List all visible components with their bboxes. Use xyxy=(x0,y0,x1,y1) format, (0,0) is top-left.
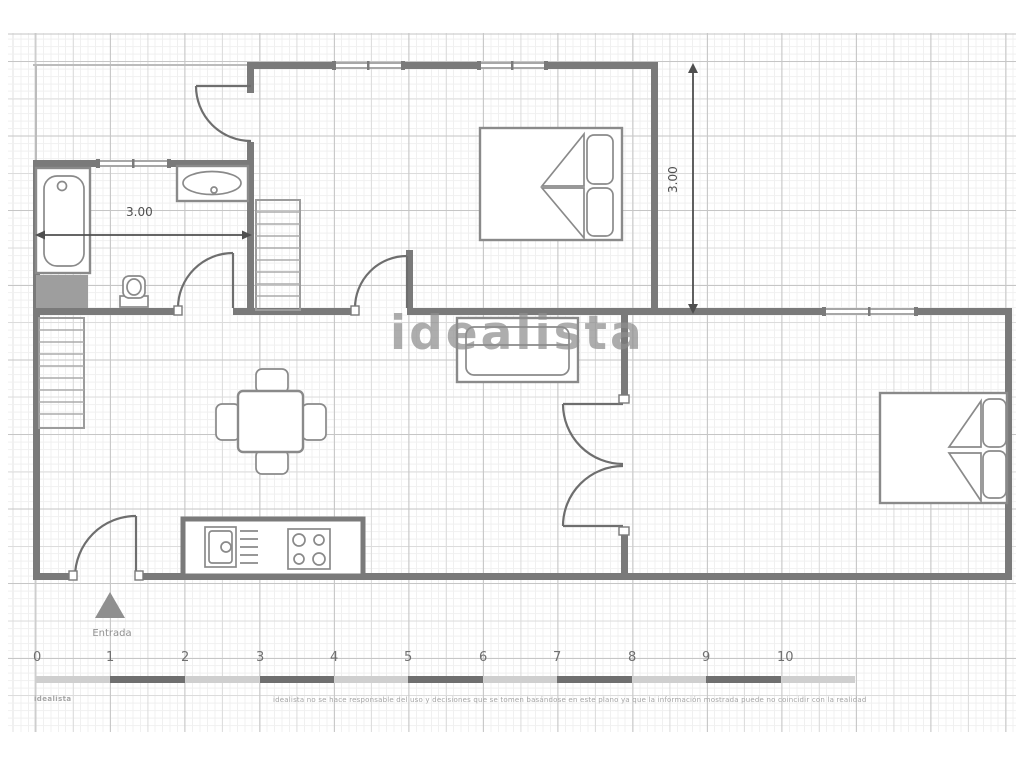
entrance-label: Entrada xyxy=(80,628,144,639)
floor-plan-screenshot: 3.00 3.00 idealista Entrada 0 1 2 3 4 5 … xyxy=(0,0,1024,768)
ruler-segment xyxy=(557,676,632,683)
bed-double-icon xyxy=(480,128,622,240)
ruler-segment xyxy=(110,676,185,683)
wardrobe-bedroom1-icon xyxy=(256,200,300,310)
ruler-number: 5 xyxy=(404,650,430,665)
wall-french-lower xyxy=(621,528,628,580)
ruler-segment xyxy=(408,676,483,683)
bed2-double-icon xyxy=(880,393,1007,503)
bathroom-door xyxy=(174,253,233,315)
wall-mid-seg1 xyxy=(33,308,180,315)
terrace-outline xyxy=(33,65,254,160)
window-bedroom1-right xyxy=(477,61,548,70)
ruler-segment xyxy=(706,676,781,683)
dimension-label-bedroom: 3.00 xyxy=(666,157,680,193)
ruler-number: 8 xyxy=(628,650,654,665)
ruler-number: 3 xyxy=(256,650,282,665)
window-hall-right xyxy=(822,307,918,316)
footer-disclaimer: idealista no se hace responsable del uso… xyxy=(273,696,873,704)
bedroom2 xyxy=(880,393,1007,503)
idealista-watermark: idealista xyxy=(390,306,645,361)
terrace-door xyxy=(196,86,251,141)
ruler-number: 4 xyxy=(330,650,356,665)
ruler-number: 1 xyxy=(106,650,132,665)
ruler-number: 2 xyxy=(181,650,207,665)
entrance-arrow-icon xyxy=(95,592,125,618)
dimension-label-bathroom: 3.00 xyxy=(126,205,153,219)
ruler-number: 10 xyxy=(777,650,803,665)
kitchen-sink-icon xyxy=(205,527,236,567)
shower-block xyxy=(36,275,88,308)
window-bedroom1-left xyxy=(332,61,405,70)
bedroom1 xyxy=(196,63,698,315)
window-bathroom xyxy=(96,159,171,168)
bedroom-dimension-arrow xyxy=(688,63,698,314)
ruler-number: 7 xyxy=(553,650,579,665)
bathtub-icon xyxy=(36,168,90,273)
dining-set-icon xyxy=(216,369,326,474)
toilet-icon xyxy=(120,276,148,307)
entrance-door xyxy=(69,516,143,580)
footer-brand: idealista xyxy=(34,695,72,703)
french-doors xyxy=(563,395,629,535)
wall-bedroom1-left-jamb xyxy=(247,62,254,93)
ruler-number: 0 xyxy=(33,650,59,665)
stove-icon xyxy=(288,529,330,569)
ruler-segment xyxy=(260,676,334,683)
floor-plan-canvas xyxy=(0,0,1024,768)
kitchen-counter xyxy=(183,519,363,576)
wall-top xyxy=(247,62,657,69)
ruler-number: 6 xyxy=(479,650,505,665)
bathroom xyxy=(35,166,252,315)
ruler-number: 9 xyxy=(702,650,728,665)
wall-bottom-left xyxy=(33,573,72,580)
shelving-icon xyxy=(39,318,84,428)
wall-bedroom1-right xyxy=(651,62,658,315)
sink-icon xyxy=(177,166,248,201)
